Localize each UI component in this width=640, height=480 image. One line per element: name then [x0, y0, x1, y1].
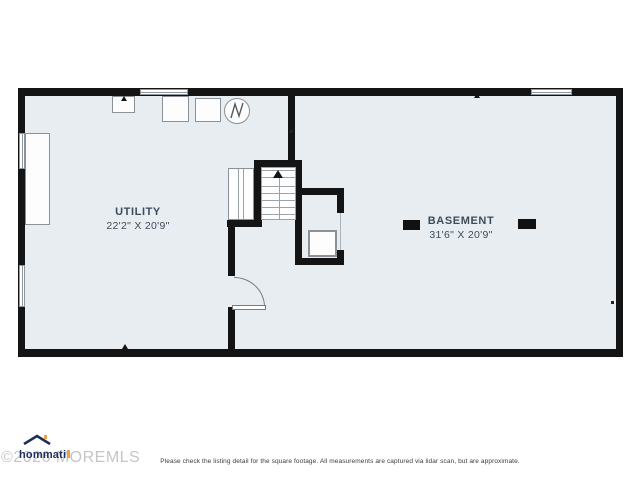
water-heater-icon — [224, 98, 250, 124]
door-leaf — [232, 305, 266, 310]
wall-exterior-bottom — [18, 349, 623, 357]
stairs-up-arrow-icon — [273, 170, 283, 178]
storage-tank-icon — [25, 133, 50, 225]
disclaimer-text: Please check the listing detail for the … — [160, 458, 519, 465]
wall-divider-lower-a — [228, 220, 235, 277]
logo-accent-mark — [67, 450, 70, 458]
sump-pit-icon — [308, 230, 337, 257]
logo-text: hommati — [19, 450, 66, 461]
top-right-window — [531, 89, 572, 95]
water-heater-zigzag-icon — [225, 99, 249, 123]
wall-exterior-left — [18, 88, 25, 357]
scan-marker-icon — [290, 130, 293, 133]
floor-plan: UTILITY 22'2" X 20'9" BASEMENT 31'6" X 2… — [0, 0, 640, 480]
appliance-washer-icon — [162, 96, 189, 122]
top-left-window — [140, 89, 188, 95]
room-dimensions: 22'2" X 20'9" — [68, 219, 208, 233]
wall-small-room-bottom — [295, 258, 344, 265]
wall-small-room-top — [295, 188, 343, 195]
scan-marker-icon — [122, 344, 128, 349]
appliance-dryer-icon — [195, 98, 221, 122]
scan-marker-icon — [474, 93, 480, 98]
wall-divider-upper — [288, 96, 295, 162]
house-roof-icon — [23, 434, 53, 445]
small-room-opening-line — [340, 213, 341, 250]
room-dimensions: 31'6" X 20'9" — [391, 228, 531, 242]
wall-small-room-right-upper — [337, 188, 344, 213]
hommati-logo: hommati — [19, 434, 81, 463]
wall-stairwell-left — [254, 167, 261, 221]
left-upper-window — [19, 133, 25, 169]
room-label-basement: BASEMENT 31'6" X 20'9" — [391, 215, 531, 242]
wall-divider-lower-b — [228, 307, 235, 349]
stair-rail-line — [279, 176, 280, 219]
left-lower-window — [19, 265, 25, 307]
wall-exterior-right — [616, 88, 623, 357]
room-name: UTILITY — [68, 206, 208, 219]
room-label-utility: UTILITY 22'2" X 20'9" — [68, 206, 208, 233]
closet-shelves-icon — [228, 168, 254, 220]
scan-marker-icon — [611, 301, 614, 304]
scan-marker-icon — [121, 96, 127, 101]
room-name: BASEMENT — [391, 215, 531, 228]
floor-plan-page: UTILITY 22'2" X 20'9" BASEMENT 31'6" X 2… — [0, 0, 640, 480]
wall-small-room-left — [295, 160, 302, 265]
